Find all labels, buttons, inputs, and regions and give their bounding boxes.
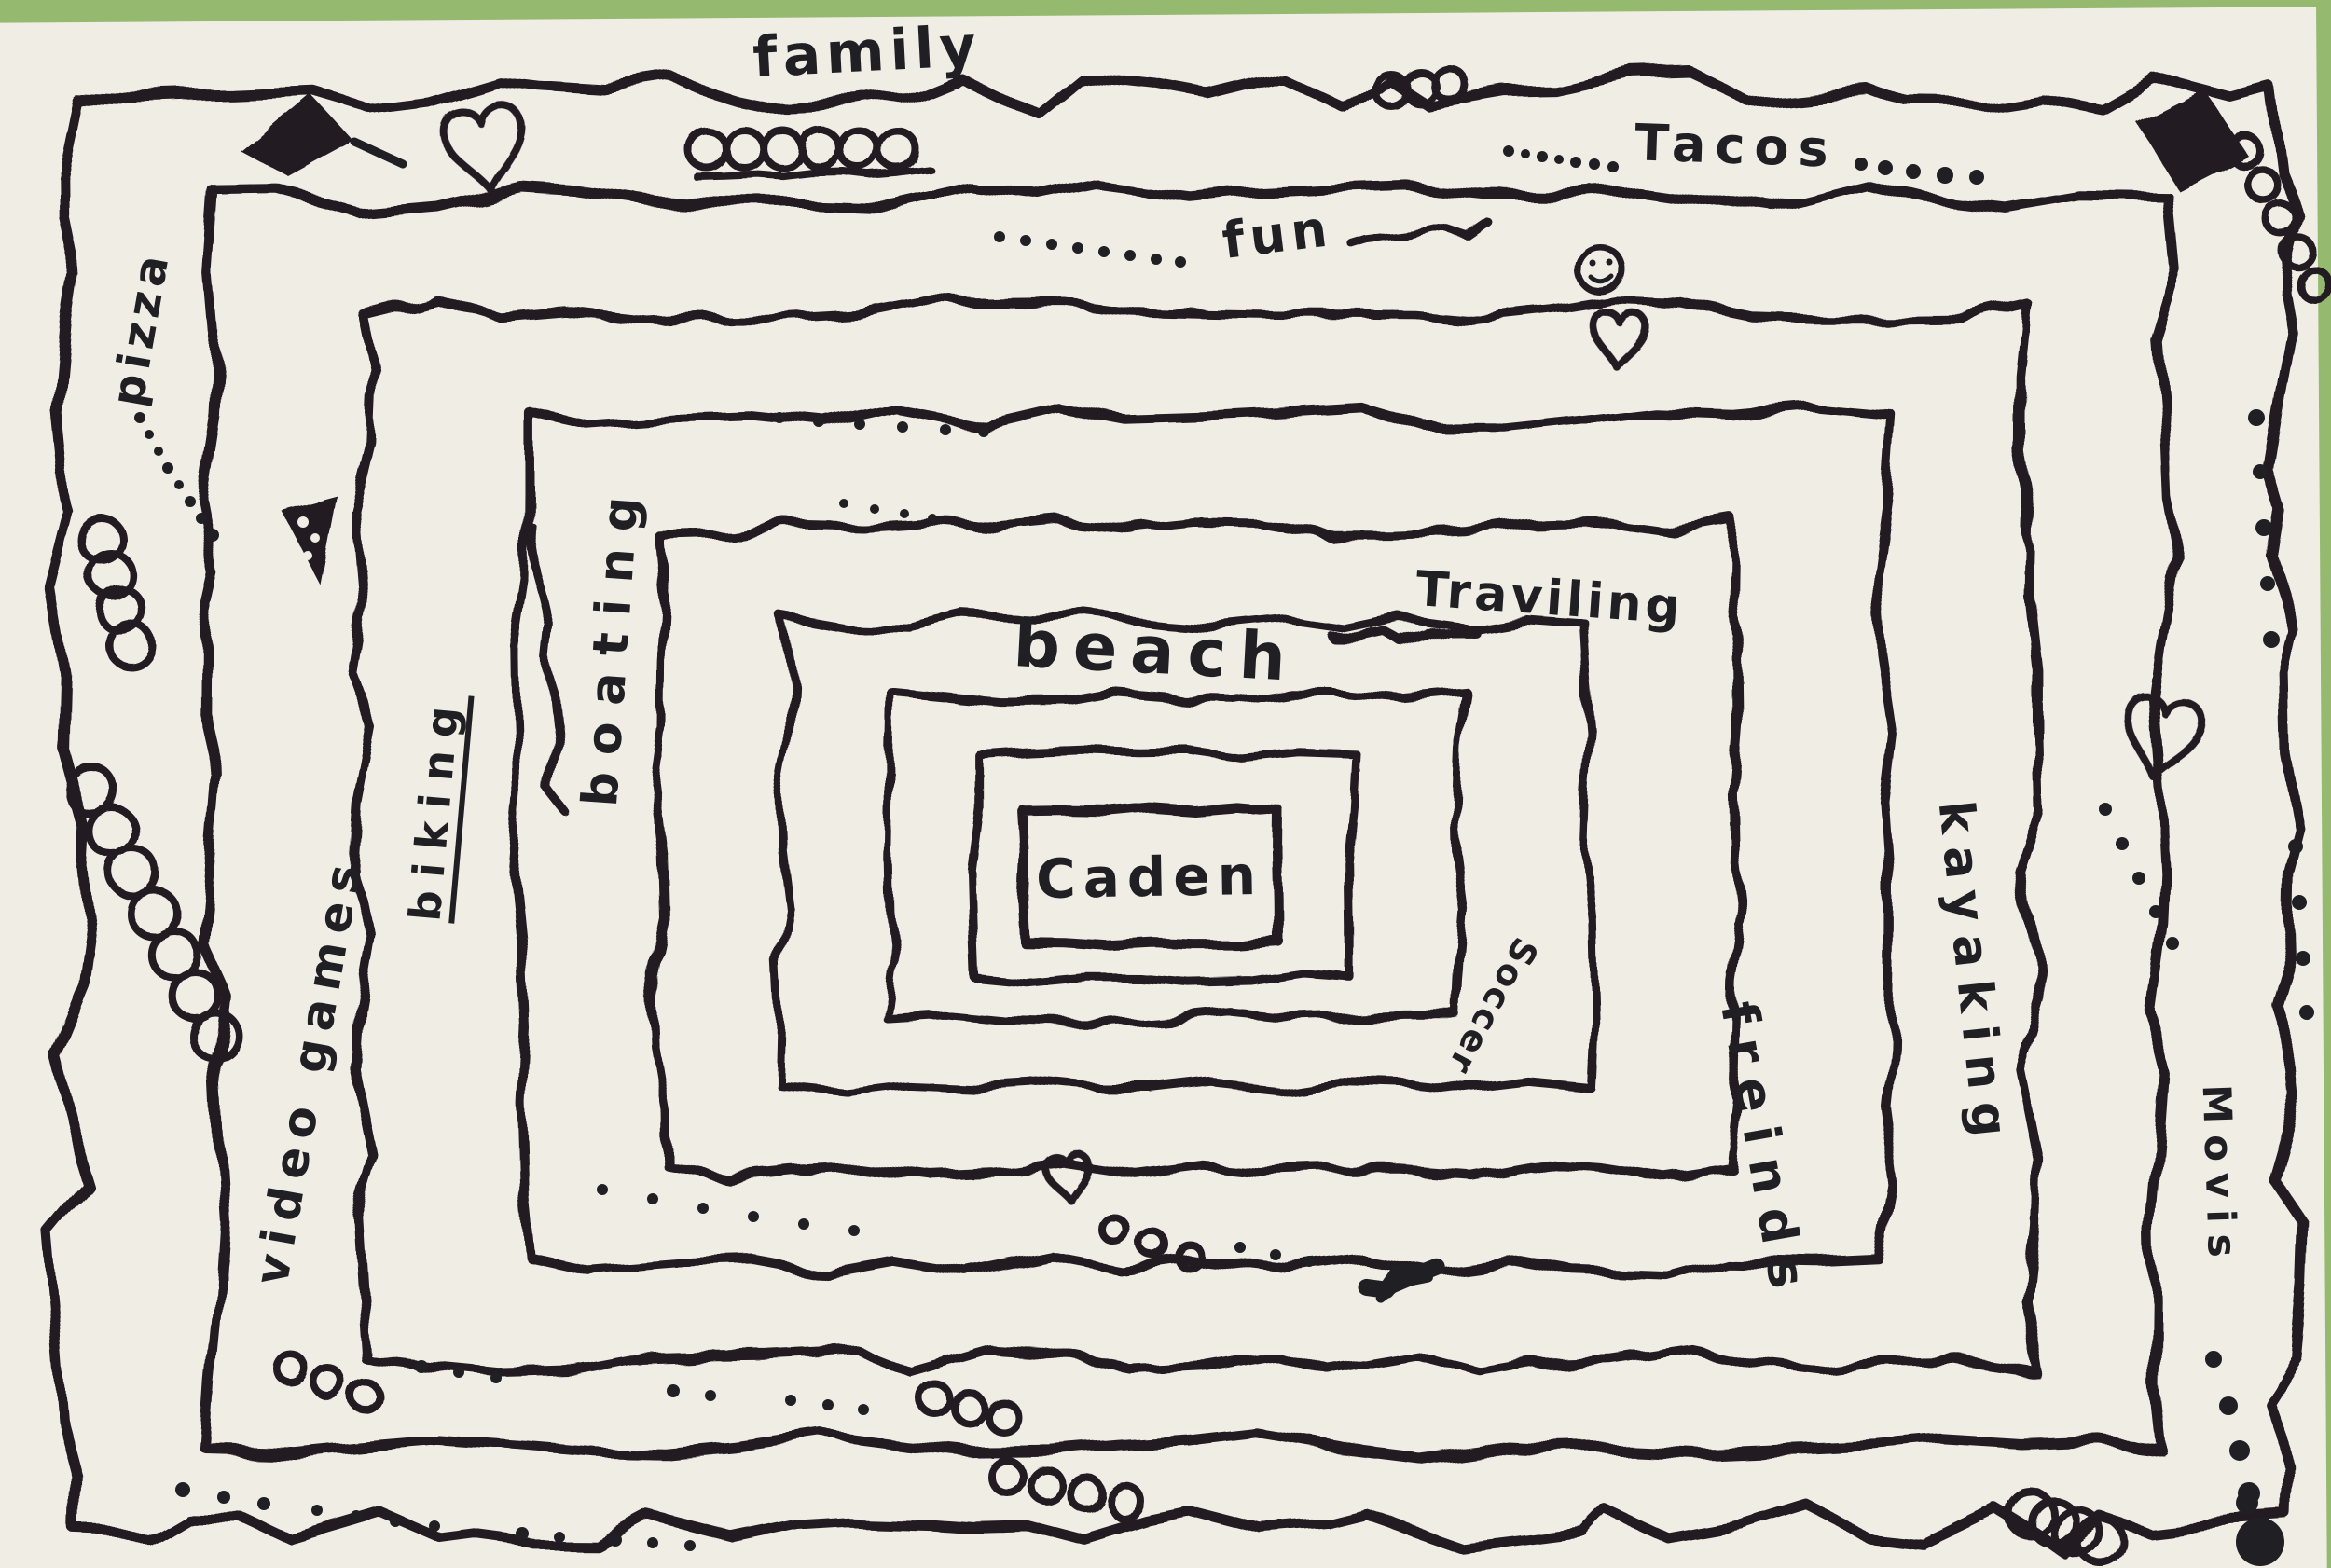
dot-trail xyxy=(1303,1256,1315,1267)
dot-trail xyxy=(490,1372,502,1383)
dot-trail xyxy=(1124,250,1136,261)
loop-doodle xyxy=(840,131,877,168)
dot-trail xyxy=(429,1520,440,1532)
dot-trail xyxy=(2263,631,2280,648)
pizza-topping-dot xyxy=(310,533,320,543)
loop-doodle xyxy=(988,1402,1018,1432)
loop-doodle xyxy=(1031,1469,1063,1501)
smiley-mouth xyxy=(1591,276,1611,282)
heart-icon xyxy=(1045,1154,1093,1204)
pizza-topping-dot xyxy=(303,551,312,560)
loop-doodle xyxy=(277,1355,305,1382)
label-fun: fun xyxy=(1220,203,1335,267)
dot-trail xyxy=(1537,151,1548,162)
dot-trail xyxy=(1046,239,1057,250)
flag-icon xyxy=(241,93,354,177)
label-movies: Movis xyxy=(2197,1084,2242,1270)
flag-line xyxy=(354,142,403,164)
dot-trail xyxy=(1969,170,1984,185)
dot-trail xyxy=(813,416,824,427)
dot-trail xyxy=(415,1360,428,1373)
loop-doodle xyxy=(765,131,802,168)
dot-trail xyxy=(311,1505,323,1516)
loop-doodle xyxy=(1110,1487,1142,1519)
dot-trail xyxy=(1072,242,1083,254)
dot-trail xyxy=(1878,160,1893,175)
loop-doodle xyxy=(878,131,916,168)
label-beach: beach xyxy=(1012,611,1300,691)
dot-trail xyxy=(839,499,848,508)
dot-trail xyxy=(1234,1242,1246,1253)
dot-trail xyxy=(609,1534,622,1547)
dot-trail xyxy=(185,496,196,507)
dot-trail xyxy=(1151,254,1162,265)
dot-trail xyxy=(684,1540,696,1551)
loop-doodle xyxy=(688,131,725,168)
dot-trail xyxy=(848,1225,860,1236)
dot-trail xyxy=(647,1537,658,1548)
dot-trail xyxy=(351,1510,362,1521)
dot-trail xyxy=(145,430,154,439)
vertical-squiggle xyxy=(531,527,567,814)
dot-trail xyxy=(2248,409,2265,426)
label-caden: Caden xyxy=(1036,848,1264,906)
dot-trail xyxy=(390,1516,401,1527)
dot-trail xyxy=(134,412,145,423)
triangle-blob-icon xyxy=(2137,89,2249,192)
smiley-face-icon xyxy=(1578,247,1622,292)
dot-trail xyxy=(554,1532,565,1543)
dot-trail xyxy=(870,504,879,514)
dot-trail xyxy=(1270,1249,1281,1260)
dot-trail xyxy=(2296,951,2310,966)
dot-trail xyxy=(2132,872,2145,885)
dot-trail xyxy=(774,412,785,423)
dot-trail xyxy=(940,424,951,435)
loop-doodle xyxy=(991,1461,1023,1492)
dot-trail xyxy=(2288,839,2303,854)
dot-trail xyxy=(1521,149,1530,158)
loop-doodle xyxy=(1140,1231,1165,1256)
dot-trail xyxy=(1570,157,1581,168)
dot-trail xyxy=(2116,837,2129,850)
dot-trail xyxy=(854,419,865,430)
dot-trail xyxy=(516,1527,529,1540)
dot-trail xyxy=(1503,145,1514,157)
photo-background: family Tacos fun Traviling beach Caden S… xyxy=(0,0,2331,1568)
loop-doodle xyxy=(1070,1479,1102,1510)
dot-trail xyxy=(785,1395,796,1406)
ink-blob xyxy=(2236,1518,2284,1566)
dot-trail xyxy=(2253,464,2268,479)
doodle-canvas xyxy=(0,0,2331,1568)
dot-trail xyxy=(822,1399,834,1410)
loop-doodle xyxy=(314,1369,342,1396)
loop-doodle xyxy=(726,131,764,168)
dot-trail xyxy=(667,1384,680,1397)
dot-trail xyxy=(2236,1492,2258,1514)
dot-trail xyxy=(705,1390,716,1401)
label-family: family xyxy=(752,19,983,87)
dot-trail xyxy=(1554,155,1564,164)
squiggle-after-fun xyxy=(1353,221,1487,245)
loop-doodle xyxy=(2265,203,2295,233)
smiley-eye xyxy=(1607,259,1613,266)
loop-doodle xyxy=(919,1383,949,1413)
dot-trail xyxy=(1098,246,1110,257)
dot-trail xyxy=(1589,158,1600,170)
dot-trail xyxy=(2260,576,2275,591)
dot-trail xyxy=(1175,256,1186,268)
dot-trail xyxy=(858,1404,869,1415)
dot-trail xyxy=(257,1497,270,1510)
dot-trail xyxy=(1020,235,1031,246)
dot-trail xyxy=(1855,158,1868,171)
dot-trail xyxy=(2099,803,2112,816)
dot-trail xyxy=(900,509,909,518)
heart-icon xyxy=(1591,310,1647,368)
loop-doodle xyxy=(802,131,839,168)
dot-trail xyxy=(2299,1005,2314,1020)
loop-doodle xyxy=(954,1393,984,1423)
dot-trail xyxy=(174,480,184,489)
dot-trail xyxy=(597,1184,608,1195)
loop-doodle xyxy=(2299,269,2329,299)
dot-trail xyxy=(2166,937,2179,950)
dot-trail xyxy=(978,426,989,437)
loop-doodle xyxy=(1103,1218,1127,1243)
dot-trail xyxy=(2219,1396,2238,1415)
dot-trail xyxy=(928,514,937,523)
dot-trail xyxy=(175,1482,190,1497)
dot-trail xyxy=(154,447,163,456)
dot-trail xyxy=(453,1367,464,1378)
dot-trail xyxy=(897,421,908,433)
smiley-eye xyxy=(1590,260,1596,267)
dot-trail xyxy=(647,1193,658,1204)
dot-trail xyxy=(206,529,219,542)
loop-doodle xyxy=(2248,170,2278,199)
dot-trail xyxy=(798,1218,809,1230)
dot-trail xyxy=(2292,895,2307,910)
squiggle-after-beach xyxy=(1334,630,1473,645)
dot-trail xyxy=(2255,519,2272,536)
dot-trail xyxy=(1906,164,1921,179)
dot-trail xyxy=(994,231,1005,242)
dot-trail xyxy=(697,1203,709,1214)
dot-trail xyxy=(196,513,207,524)
loop-doodle xyxy=(352,1382,379,1410)
dot-trail xyxy=(1937,167,1953,184)
dot-trail xyxy=(2205,1351,2222,1368)
dot-trail xyxy=(162,462,173,474)
dot-trail xyxy=(748,1211,759,1222)
dot-trail xyxy=(217,1491,230,1504)
pizza-slice-icon xyxy=(282,496,338,585)
dot-trail xyxy=(2149,905,2162,918)
pizza-topping-dot xyxy=(297,516,309,528)
label-tacos: Tacos xyxy=(1634,117,1838,175)
dot-trail xyxy=(2229,1440,2250,1461)
dot-trail xyxy=(1607,161,1619,172)
